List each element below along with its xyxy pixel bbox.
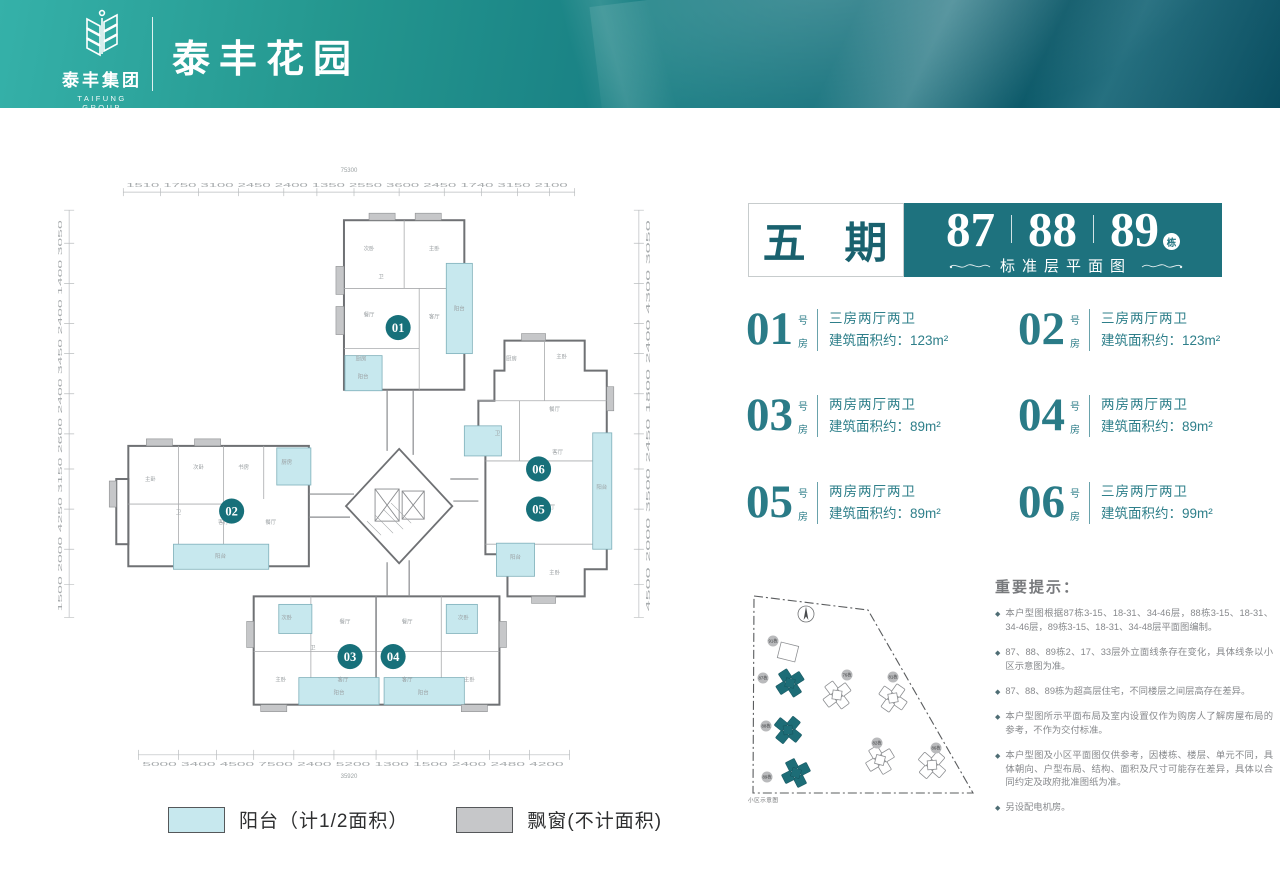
building-number-87: 87 [946, 205, 995, 254]
room-label: 客厅 [429, 313, 440, 321]
unit-divider [1089, 309, 1090, 351]
unit-number: 02 [1018, 306, 1065, 353]
room-label: 书房 [238, 463, 249, 471]
unit-tag-bottom: 房 [1070, 508, 1080, 523]
unit-badge-02: 02 [219, 499, 244, 524]
header-banner: 泰丰集团 TAIFUNG GROUP 泰丰花园 [0, 0, 1280, 108]
siteplan-caption: 小区示意图 [748, 796, 778, 804]
site-building-badge-label: 81栋 [888, 674, 898, 681]
room-label: 卫 [378, 273, 384, 280]
brand-name-cn: 泰丰集团 [56, 66, 148, 91]
room-label: 主卧 [145, 475, 156, 483]
note-text: 本户型图根据87栋3-15、18-31、34-46层，88栋3-15、18-31… [1005, 607, 1273, 635]
important-notes: 重要提示： ◆ 本户型图根据87栋3-15、18-31、34-46层，88栋3-… [995, 576, 1273, 826]
room-label: 客厅 [338, 676, 349, 684]
room-label: 厨房 [356, 355, 367, 363]
dim-numbers-left: 1500 2000 4250 3150 2600 2400 3450 2400 … [58, 220, 64, 611]
note-item: ◆ 87、88、89栋为超高层住宅，不同楼层之间层高存在差异。 [995, 685, 1273, 699]
buildings-title: 87 88 89 栋 标准层平面图 [904, 203, 1222, 277]
project-title: 泰丰花园 [172, 28, 360, 83]
unit-tag-bottom: 房 [1070, 335, 1080, 350]
diamond-bullet-icon: ◆ [995, 649, 1000, 674]
note-text: 87、88、89栋为超高层住宅，不同楼层之间层高存在差异。 [1005, 685, 1250, 699]
building-outline [864, 744, 897, 777]
diamond-bullet-icon: ◆ [995, 713, 1000, 738]
unit-layout: 三房两厅两卫 [829, 308, 948, 330]
unit-badge-number: 06 [532, 462, 545, 476]
room-label: 阳台 [334, 689, 345, 697]
room-label: 卫 [495, 430, 501, 437]
unit-divider [817, 309, 818, 351]
room-label: 次卧 [364, 244, 375, 252]
unit-entry-03: 03 号 房 两房两厅两卫 建筑面积约：89m² [746, 392, 941, 439]
room-label: 客厅 [402, 676, 413, 684]
room-label: 厨房 [281, 458, 292, 466]
room-label: 阳台 [596, 483, 607, 491]
diamond-bullet-icon: ◆ [995, 752, 1000, 791]
building-88-highlight [773, 715, 803, 745]
phase-title: 五 期 [748, 203, 904, 277]
unit-badge-number: 02 [225, 505, 238, 519]
unit-number: 03 [746, 392, 793, 439]
diamond-bullet-icon: ◆ [995, 610, 1000, 635]
building-outline [822, 680, 852, 710]
brochure-page: 泰丰集团 TAIFUNG GROUP 泰丰花园 75300 1510 1750 … [0, 0, 1280, 869]
dim-numbers-top: 1510 1750 3100 2450 2400 1350 2550 3600 … [126, 183, 568, 189]
unit-layout: 两房两厅两卫 [1101, 394, 1213, 416]
floorplan-drawing: 75300 1510 1750 3100 2450 2400 1350 2550… [48, 148, 660, 810]
legend-label: 飘窗(不计面积) [527, 806, 662, 833]
diamond-bullet-icon: ◆ [995, 688, 1000, 699]
dim-numbers-right: 4500 2000 3500 2450 1800 2400 4300 3050 [646, 220, 652, 612]
room-label: 阳台 [454, 304, 465, 312]
dim-total-top: 75300 [341, 168, 358, 174]
note-item: ◆ 本户型图所示平面布局及室内设置仅作为购房人了解房屋布局的参考，不作为交付标准… [995, 710, 1273, 738]
unit-badge-number: 03 [344, 650, 357, 664]
room-label: 餐厅 [265, 518, 276, 526]
unit-badge-06: 06 [526, 456, 551, 481]
room-label: 主卧 [556, 353, 567, 361]
unit-entry-06: 06 号 房 三房两厅两卫 建筑面积约：99m² [1018, 479, 1213, 526]
unit-layout: 三房两厅两卫 [1101, 308, 1220, 330]
note-text: 本户型图及小区平面图仅供参考，因楼栋、楼层、单元不同，具体朝向、户型布局、结构、… [1005, 749, 1273, 791]
site-building-badge-label: 76栋 [842, 672, 852, 679]
subtitle-text: 标准层平面图 [1000, 255, 1132, 276]
room-label: 次卧 [193, 463, 204, 471]
unit-badge-01: 01 [386, 315, 411, 340]
dim-numbers-bottom: 5000 3400 4500 7500 2400 5200 1300 1500 … [142, 762, 564, 768]
room-label: 主卧 [549, 568, 560, 576]
unit-badge-04: 04 [381, 644, 406, 669]
note-text: 另设配电机房。 [1005, 801, 1070, 815]
unit-area: 建筑面积约：123m² [1101, 330, 1220, 352]
unit-badge-number: 04 [387, 650, 400, 664]
unit-tag-top: 号 [798, 485, 808, 500]
unit-tag-top: 号 [1070, 398, 1080, 413]
unit-list: 01 号 房 三房两厅两卫 建筑面积约：123m² 02 号 房 三房两厅两卫 … [746, 300, 1228, 562]
unit-badge-number: 01 [392, 321, 405, 335]
header-divider [152, 17, 153, 91]
separator [1011, 215, 1012, 243]
building-suffix-badge: 栋 [1163, 233, 1180, 250]
note-item: ◆ 另设配电机房。 [995, 801, 1273, 815]
unit-divider [1089, 482, 1090, 524]
unit-number: 05 [746, 479, 793, 526]
note-item: ◆ 87、88、89栋2、17、33层外立面线条存在变化，具体线条以小区示意图为… [995, 646, 1273, 674]
balcony-swatch [168, 807, 225, 833]
unit-entry-05: 05 号 房 两房两厅两卫 建筑面积约：89m² [746, 479, 941, 526]
unit-tag-bottom: 房 [1070, 421, 1080, 436]
unit-badge-05: 05 [526, 497, 551, 522]
building-89-highlight [779, 756, 813, 790]
legend-item-baywindow: 飘窗(不计面积) [456, 806, 662, 833]
unit-badge-number: 05 [532, 503, 545, 517]
building-87-highlight [774, 667, 806, 699]
unit-tag-bottom: 房 [798, 421, 808, 436]
baywindow-swatch [456, 807, 513, 833]
site-building-badge-label: 91栋 [768, 638, 778, 645]
room-label: 卫 [176, 509, 182, 516]
site-building-badge-label: 86栋 [931, 745, 941, 752]
room-label: 餐厅 [340, 617, 351, 625]
room-label: 客厅 [552, 448, 563, 456]
unit-entry-04: 04 号 房 两房两厅两卫 建筑面积约：89m² [1018, 392, 1213, 439]
brand-logo-icon [70, 8, 134, 60]
note-text: 本户型图所示平面布局及室内设置仅作为购房人了解房屋布局的参考，不作为交付标准。 [1005, 710, 1273, 738]
building-number-89: 89 [1110, 205, 1159, 254]
building-outline [918, 751, 947, 780]
unit-entry-02: 02 号 房 三房两厅两卫 建筑面积约：123m² [1018, 306, 1220, 353]
site-building-badge-label: 87栋 [758, 675, 768, 682]
room-label: 餐厅 [402, 617, 413, 625]
north-compass-icon [798, 606, 814, 622]
unit-tag-bottom: 房 [798, 335, 808, 350]
unit-divider [817, 395, 818, 437]
site-building-badge-label: 89栋 [762, 774, 772, 781]
unit-divider [817, 482, 818, 524]
legend-label: 阳台（计1/2面积） [239, 806, 408, 833]
room-label: 餐厅 [549, 405, 560, 413]
dim-total-bottom: 35920 [341, 774, 358, 780]
title-block: 五 期 87 88 89 栋 标准层平面图 [748, 203, 1222, 277]
flourish-icon [949, 261, 991, 271]
room-label: 厨房 [506, 355, 517, 363]
room-label: 主卧 [464, 676, 475, 684]
room-label: 主卧 [275, 676, 286, 684]
unit-divider [1089, 395, 1090, 437]
site-building-badge-label: 82栋 [872, 740, 882, 747]
room-label: 次卧 [458, 613, 469, 621]
unit-tag-bottom: 房 [798, 508, 808, 523]
legend-item-balcony: 阳台（计1/2面积） [168, 806, 408, 833]
unit-entry-01: 01 号 房 三房两厅两卫 建筑面积约：123m² [746, 306, 948, 353]
unit-area: 建筑面积约：99m² [1101, 503, 1213, 525]
building-outline-91 [777, 642, 798, 662]
unit-area: 建筑面积约：89m² [829, 416, 941, 438]
unit-number: 01 [746, 306, 793, 353]
site-building-badge-label: 88栋 [761, 723, 771, 730]
legend: 阳台（计1/2面积） 飘窗(不计面积) [168, 806, 710, 833]
unit-tag-top: 号 [798, 312, 808, 327]
unit-number: 04 [1018, 392, 1065, 439]
flourish-icon [1141, 261, 1183, 271]
unit-tag-top: 号 [1070, 312, 1080, 327]
notes-title: 重要提示： [995, 576, 1273, 597]
unit-layout: 两房两厅两卫 [829, 481, 941, 503]
room-label: 卫 [310, 645, 316, 652]
room-label: 阳台 [510, 553, 521, 561]
building-outline [877, 682, 908, 713]
unit-tag-top: 号 [1070, 485, 1080, 500]
unit-area: 建筑面积约：123m² [829, 330, 948, 352]
unit-layout: 两房两厅两卫 [829, 394, 941, 416]
separator [1093, 215, 1094, 243]
room-label: 阳台 [358, 373, 369, 381]
brand-block: 泰丰集团 TAIFUNG GROUP [56, 8, 148, 108]
room-label: 阳台 [418, 689, 429, 697]
brand-name-en: TAIFUNG GROUP [56, 94, 148, 108]
room-label: 主卧 [429, 244, 440, 252]
unit-tag-top: 号 [798, 398, 808, 413]
unit-badge-03: 03 [337, 644, 362, 669]
building-number-88: 88 [1028, 205, 1077, 254]
note-item: ◆ 本户型图根据87栋3-15、18-31、34-46层，88栋3-15、18-… [995, 607, 1273, 635]
unit-layout: 三房两厅两卫 [1101, 481, 1213, 503]
wave-texture [422, 0, 806, 108]
unit-area: 建筑面积约：89m² [829, 503, 941, 525]
note-item: ◆ 本户型图及小区平面图仅供参考，因楼栋、楼层、单元不同，具体朝向、户型布局、结… [995, 749, 1273, 791]
siteplan-map: 91栋87栋88栋89栋76栋81栋82栋86栋 小区示意图 [740, 580, 990, 808]
diamond-bullet-icon: ◆ [995, 804, 1000, 815]
room-label: 阳台 [215, 552, 226, 560]
note-text: 87、88、89栋2、17、33层外立面线条存在变化，具体线条以小区示意图为准。 [1005, 646, 1273, 674]
unit-number: 06 [1018, 479, 1065, 526]
room-label: 餐厅 [364, 311, 375, 319]
room-label: 次卧 [281, 613, 292, 621]
unit-area: 建筑面积约：89m² [1101, 416, 1213, 438]
